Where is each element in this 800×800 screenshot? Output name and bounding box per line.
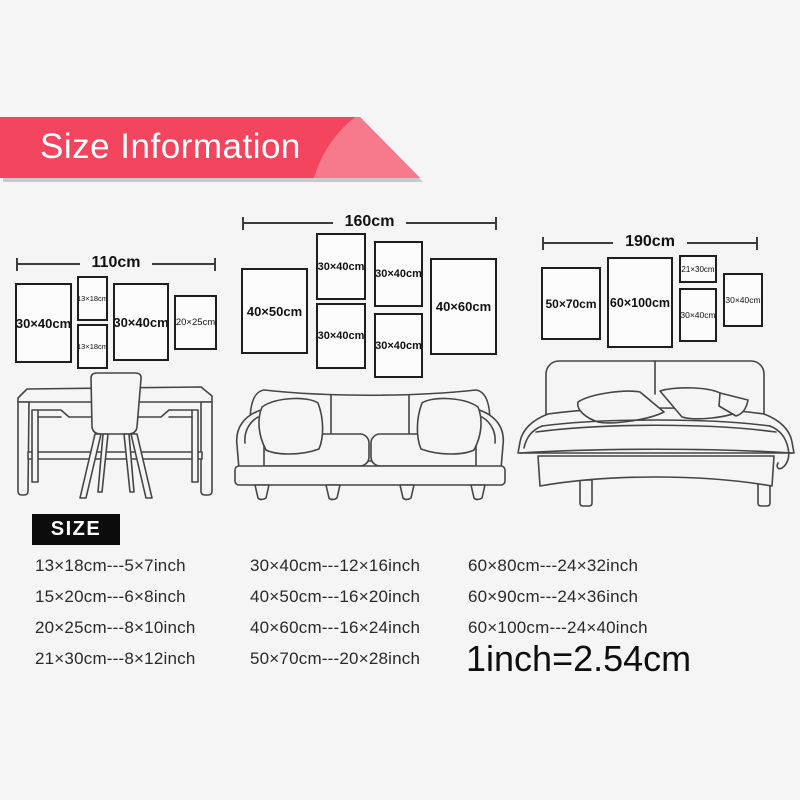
size-table-column-1: 13×18cm---5×7inch15×20cm---6×8inch20×25c… xyxy=(35,550,195,674)
dimension-line-sofa-wall: 160cm xyxy=(242,216,497,230)
bed-drawing xyxy=(512,356,800,512)
frame-size-label: 30×40cm xyxy=(375,340,422,352)
dimension-tick xyxy=(756,237,758,250)
wall-frame: 60×100cm xyxy=(607,257,673,348)
frame-size-label: 50×70cm xyxy=(545,297,596,311)
wall-frame: 40×50cm xyxy=(241,268,308,354)
frame-size-label: 20×25cm xyxy=(176,317,215,328)
frame-size-label: 40×50cm xyxy=(247,304,302,319)
total-width-label: 110cm xyxy=(92,254,141,272)
banner-title: Size Information xyxy=(40,117,301,178)
frame-size-label: 13×18cm xyxy=(77,342,108,351)
wall-frame: 30×40cm xyxy=(15,283,72,363)
dimension-line-desk-wall: 110cm xyxy=(16,257,216,271)
frame-size-label: 21×30cm xyxy=(681,265,714,274)
dimension-segment xyxy=(152,263,214,265)
frame-size-label: 30×40cm xyxy=(680,310,715,320)
wall-frame: 30×40cm xyxy=(374,241,423,307)
dimension-segment xyxy=(406,222,495,224)
wall-frame: 21×30cm xyxy=(679,255,717,283)
dimension-segment xyxy=(18,263,80,265)
desk-and-chair-drawing xyxy=(15,372,215,502)
size-conversion-row: 15×20cm---6×8inch xyxy=(35,581,195,612)
frame-size-label: 30×40cm xyxy=(318,330,365,342)
size-table-column-3: 60×80cm---24×32inch60×90cm---24×36inch60… xyxy=(468,550,648,643)
total-width-label: 190cm xyxy=(625,233,675,251)
dimension-tick xyxy=(495,217,497,230)
size-conversion-row: 60×90cm---24×36inch xyxy=(468,581,648,612)
wall-frame: 30×40cm xyxy=(316,233,366,300)
wall-frame: 50×70cm xyxy=(541,267,601,340)
dimension-segment xyxy=(544,242,613,244)
wall-frame: 13×18cm xyxy=(77,276,108,321)
size-conversion-row: 30×40cm---12×16inch xyxy=(250,550,420,581)
wall-frame: 30×40cm xyxy=(113,283,169,361)
size-conversion-row: 60×80cm---24×32inch xyxy=(468,550,648,581)
frame-size-label: 13×18cm xyxy=(77,294,108,303)
size-conversion-row: 50×70cm---20×28inch xyxy=(250,643,420,674)
wall-frame: 30×40cm xyxy=(316,303,366,369)
wall-frame: 30×40cm xyxy=(374,313,423,378)
wall-frame: 30×40cm xyxy=(723,273,763,327)
frame-size-label: 40×60cm xyxy=(436,299,491,314)
size-conversion-row: 40×60cm---16×24inch xyxy=(250,612,420,643)
wall-frame: 40×60cm xyxy=(430,258,497,355)
size-conversion-row: 21×30cm---8×12inch xyxy=(35,643,195,674)
sofa-drawing xyxy=(228,377,512,501)
size-table-column-2: 30×40cm---12×16inch40×50cm---16×20inch40… xyxy=(250,550,420,674)
frame-size-label: 30×40cm xyxy=(113,315,168,330)
frame-size-label: 30×40cm xyxy=(725,295,760,305)
dimension-tick xyxy=(214,258,216,271)
frame-size-label: 30×40cm xyxy=(318,261,365,273)
size-conversion-row: 13×18cm---5×7inch xyxy=(35,550,195,581)
total-width-label: 160cm xyxy=(345,213,395,231)
frame-size-label: 30×40cm xyxy=(375,268,422,280)
size-conversion-row: 40×50cm---16×20inch xyxy=(250,581,420,612)
size-information-banner: Size Information xyxy=(0,117,420,178)
frame-size-label: 30×40cm xyxy=(16,316,71,331)
wall-frame: 20×25cm xyxy=(174,295,217,350)
inch-cm-conversion-note: 1inch=2.54cm xyxy=(466,638,691,680)
size-conversion-row: 20×25cm---8×10inch xyxy=(35,612,195,643)
dimension-segment xyxy=(687,242,756,244)
size-heading: SIZE xyxy=(32,514,120,545)
dimension-line-bed-wall: 190cm xyxy=(542,236,758,250)
wall-frame: 13×18cm xyxy=(77,324,108,369)
wall-frame: 30×40cm xyxy=(679,288,717,342)
frame-size-label: 60×100cm xyxy=(610,296,670,310)
dimension-segment xyxy=(244,222,333,224)
